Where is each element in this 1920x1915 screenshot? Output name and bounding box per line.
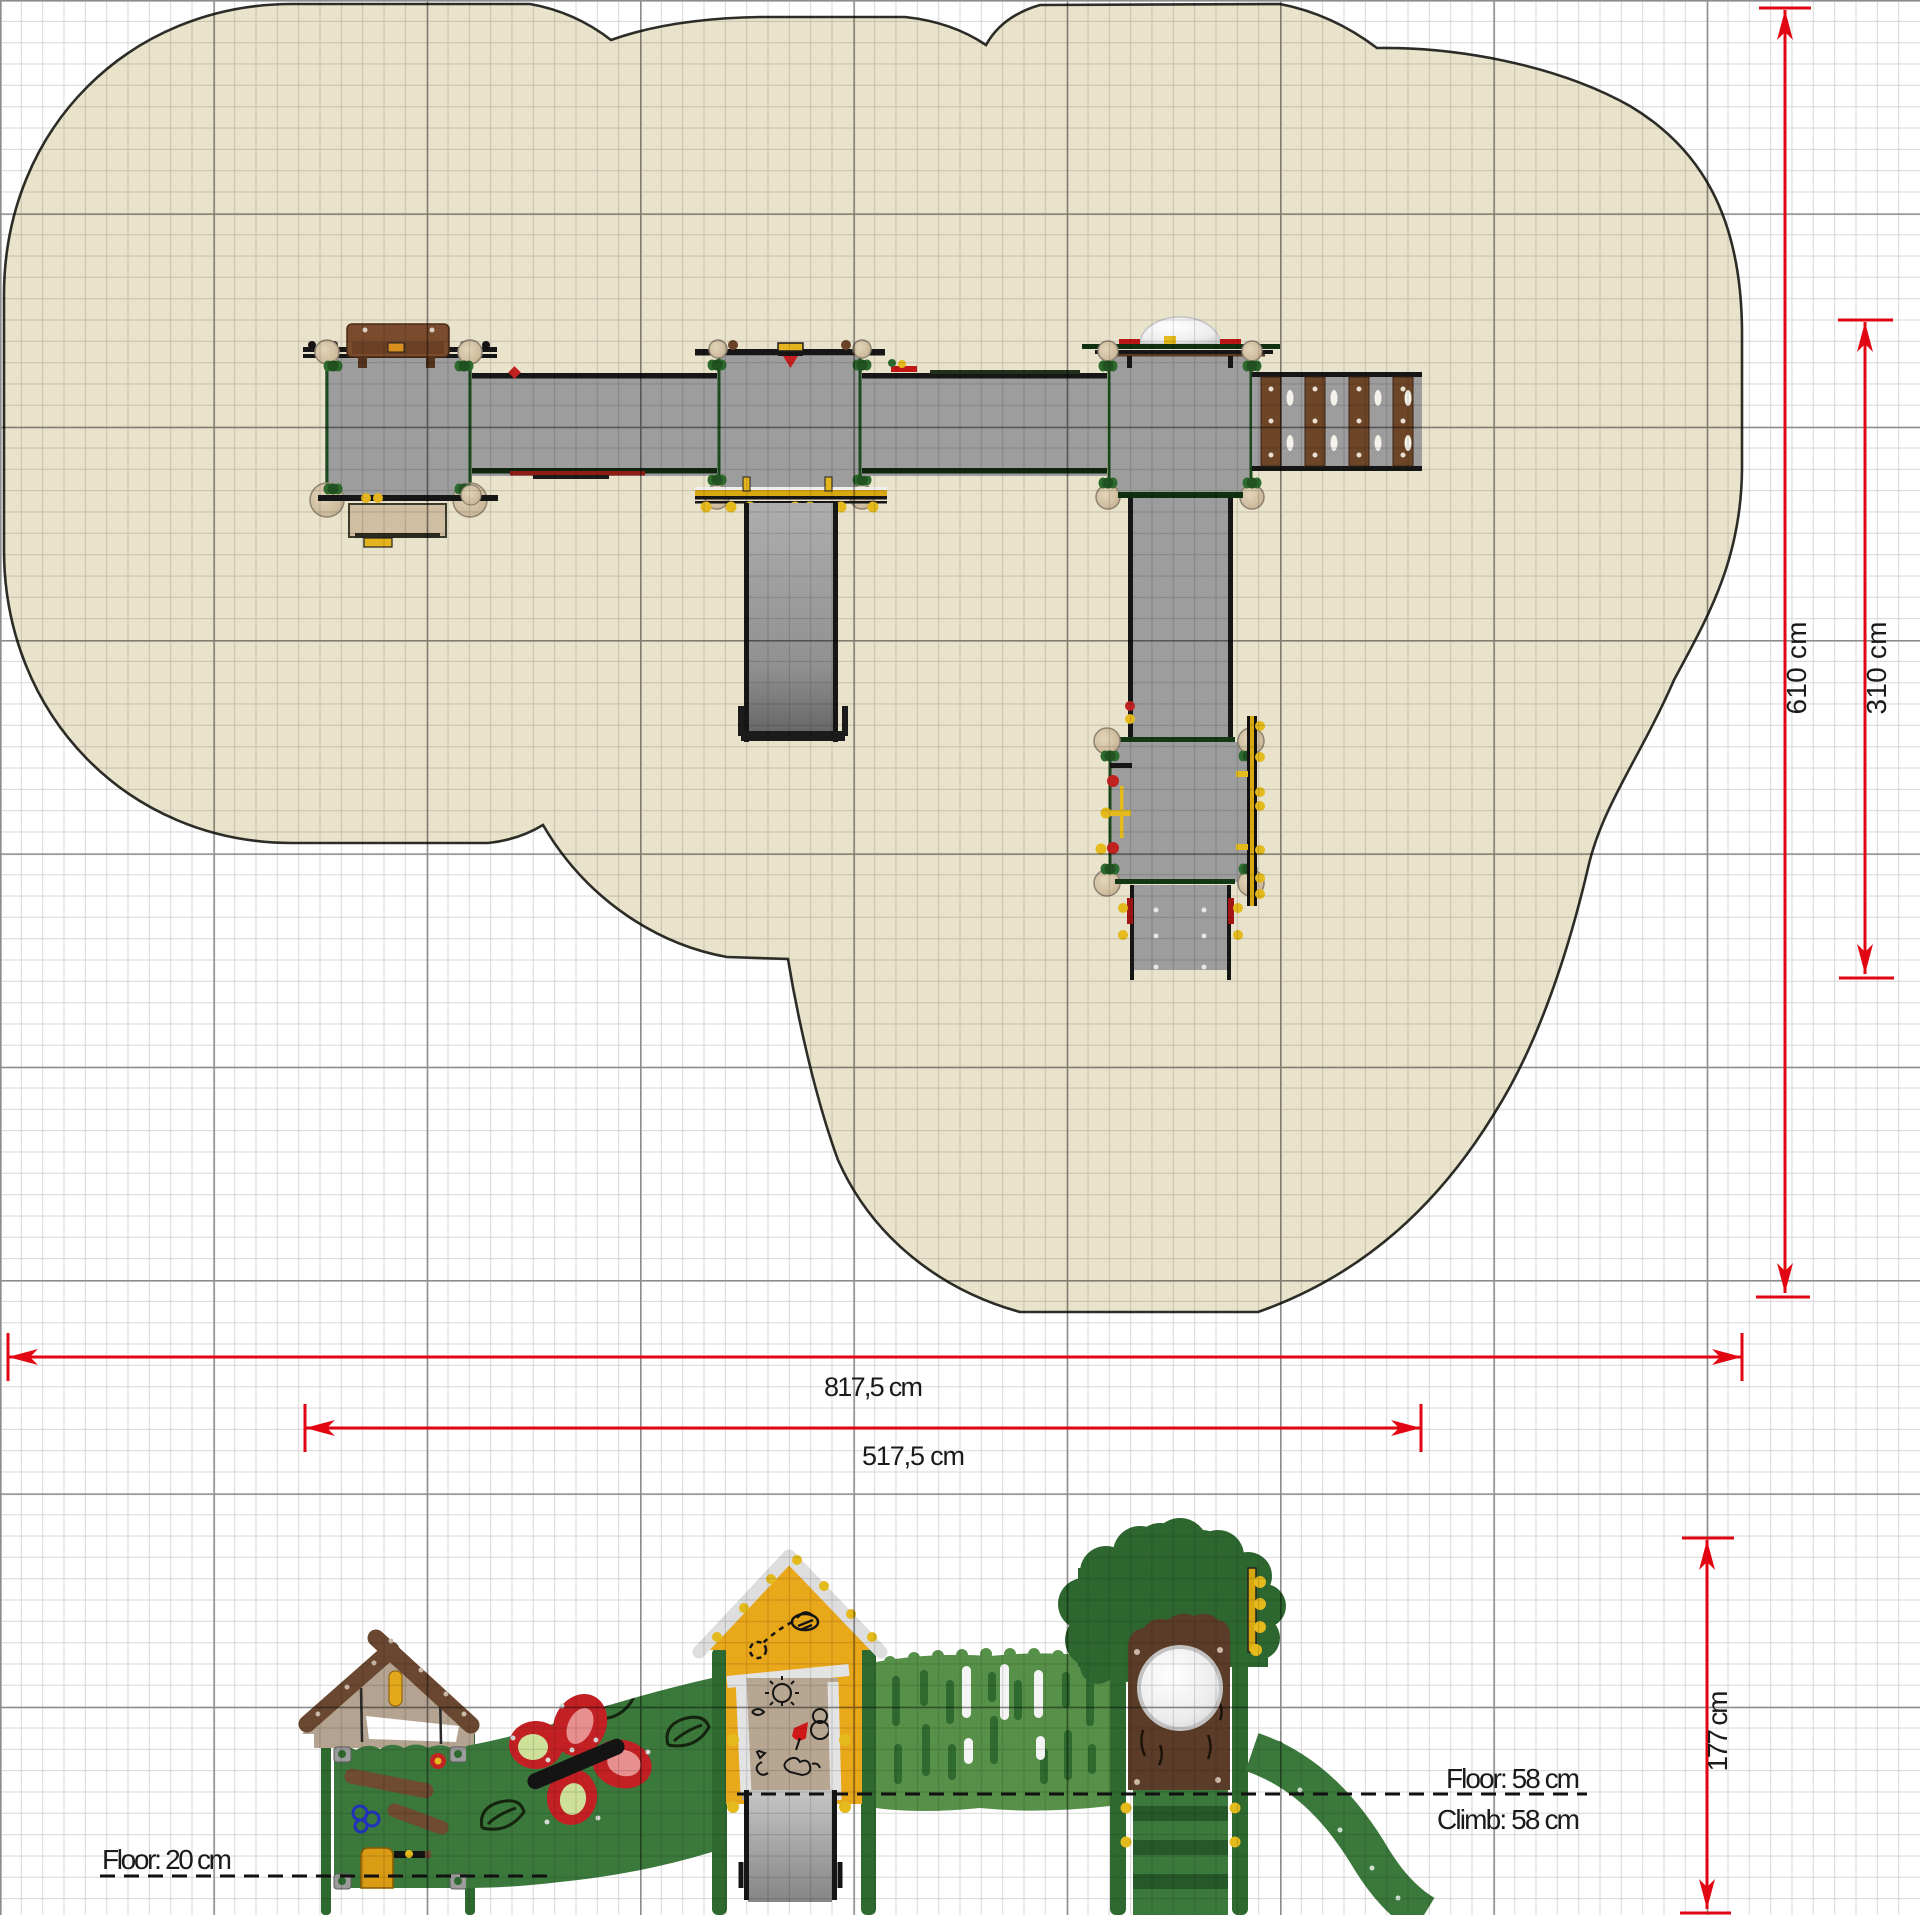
svg-text:517,5 cm: 517,5 cm [862,1441,965,1471]
svg-text:Climb: 58 cm: Climb: 58 cm [1437,1804,1580,1835]
svg-text:177 cm: 177 cm [1702,1691,1733,1772]
svg-text:610 cm: 610 cm [1781,622,1812,715]
svg-text:310 cm: 310 cm [1861,622,1892,715]
svg-text:Floor: 20 cm: Floor: 20 cm [102,1844,232,1875]
svg-text:Floor: 58 cm: Floor: 58 cm [1446,1763,1580,1794]
svg-text:817,5 cm: 817,5 cm [824,1372,923,1402]
